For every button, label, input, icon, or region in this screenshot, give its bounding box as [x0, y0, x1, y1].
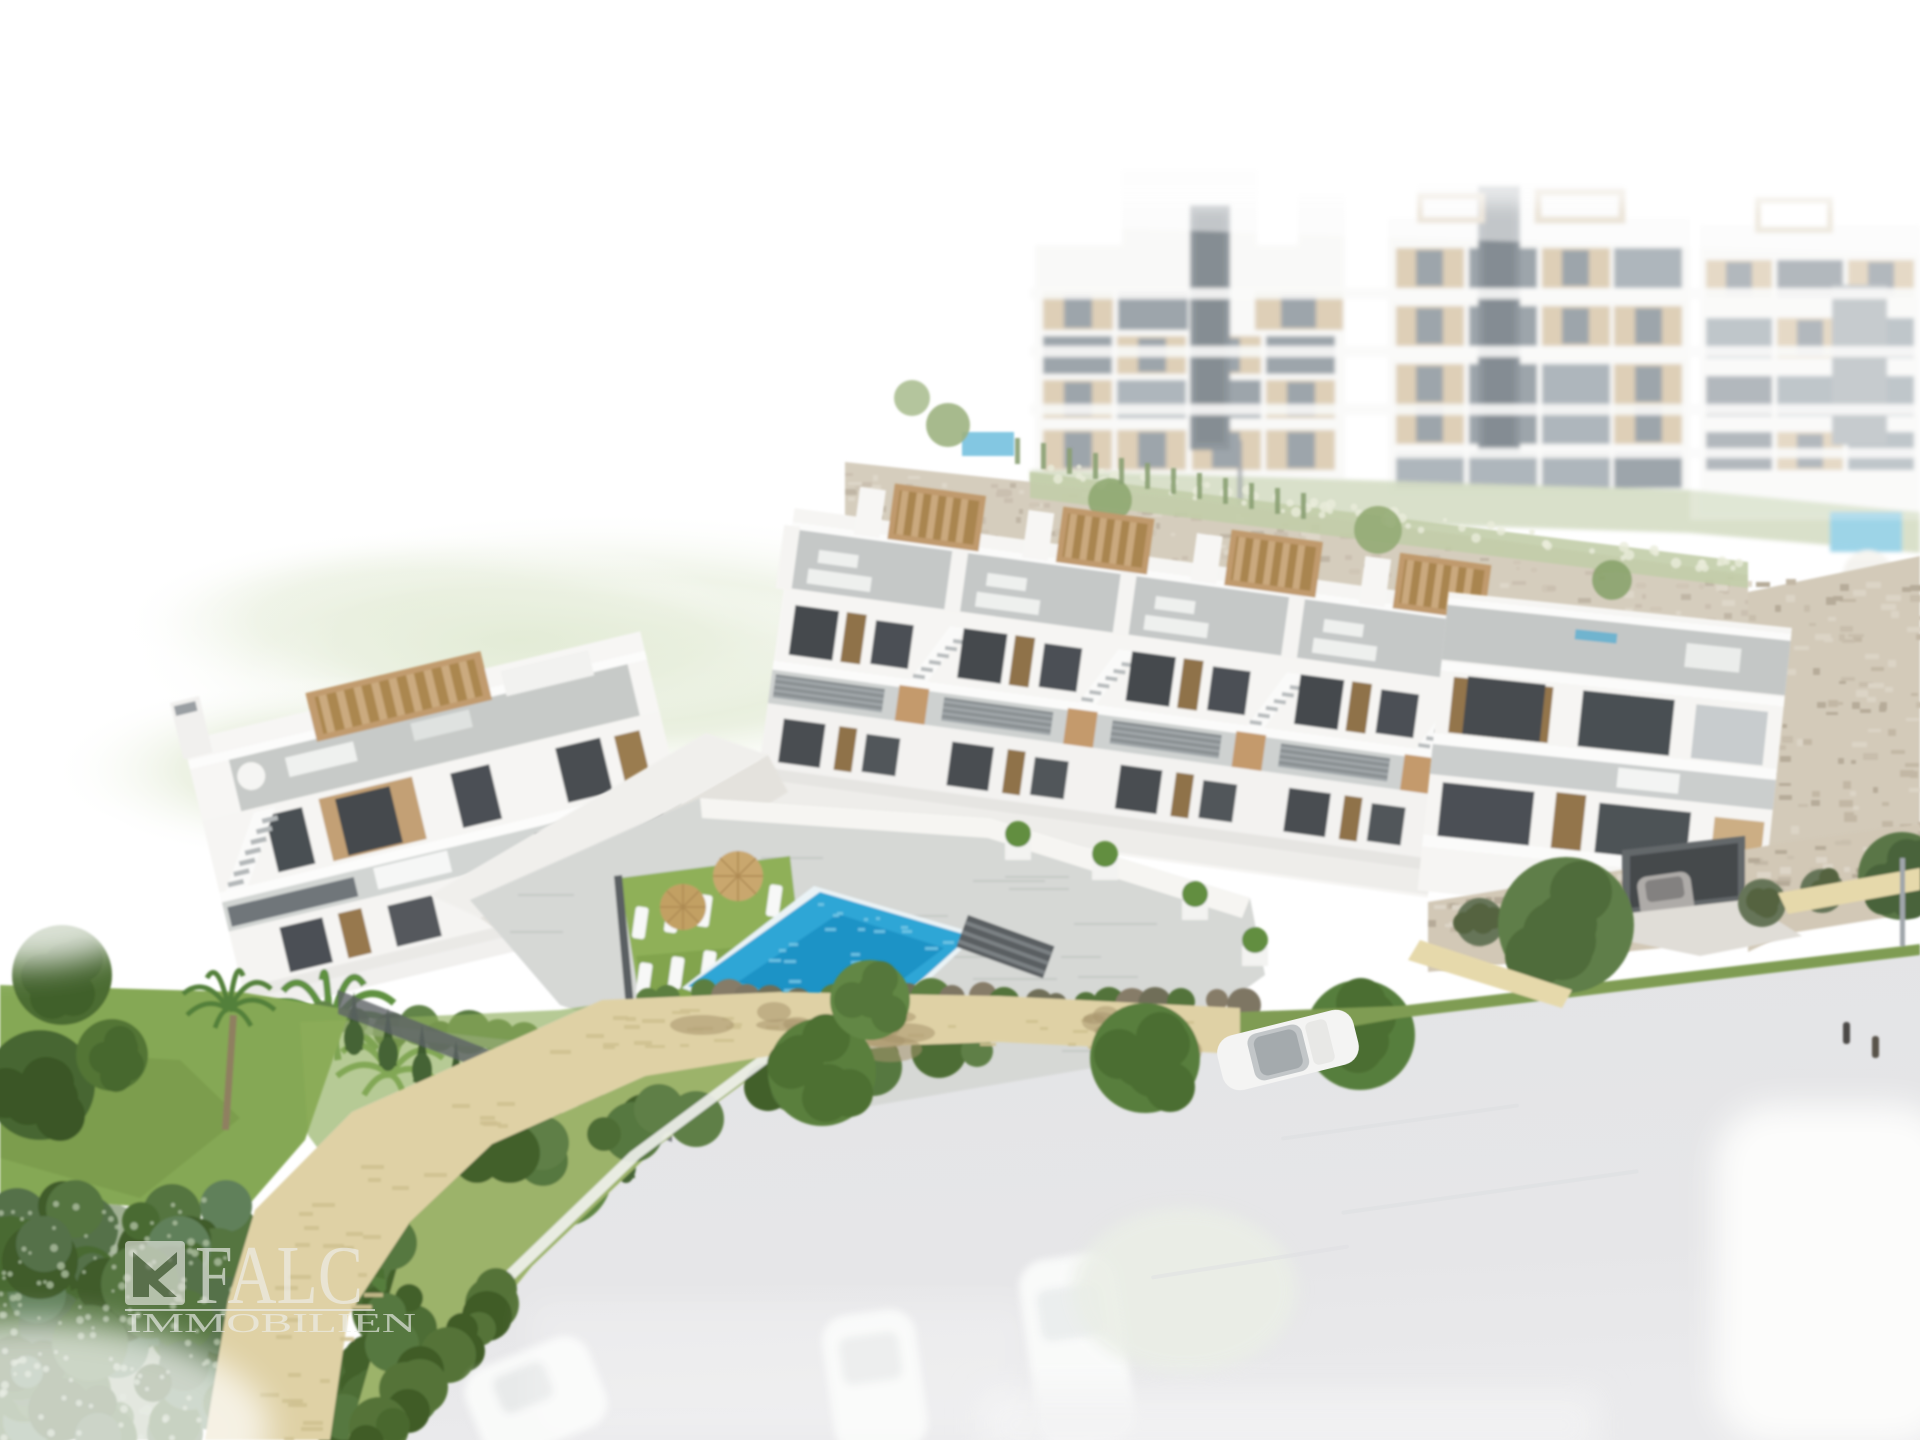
svg-text:IMMOBILIEN: IMMOBILIEN — [126, 1308, 416, 1338]
